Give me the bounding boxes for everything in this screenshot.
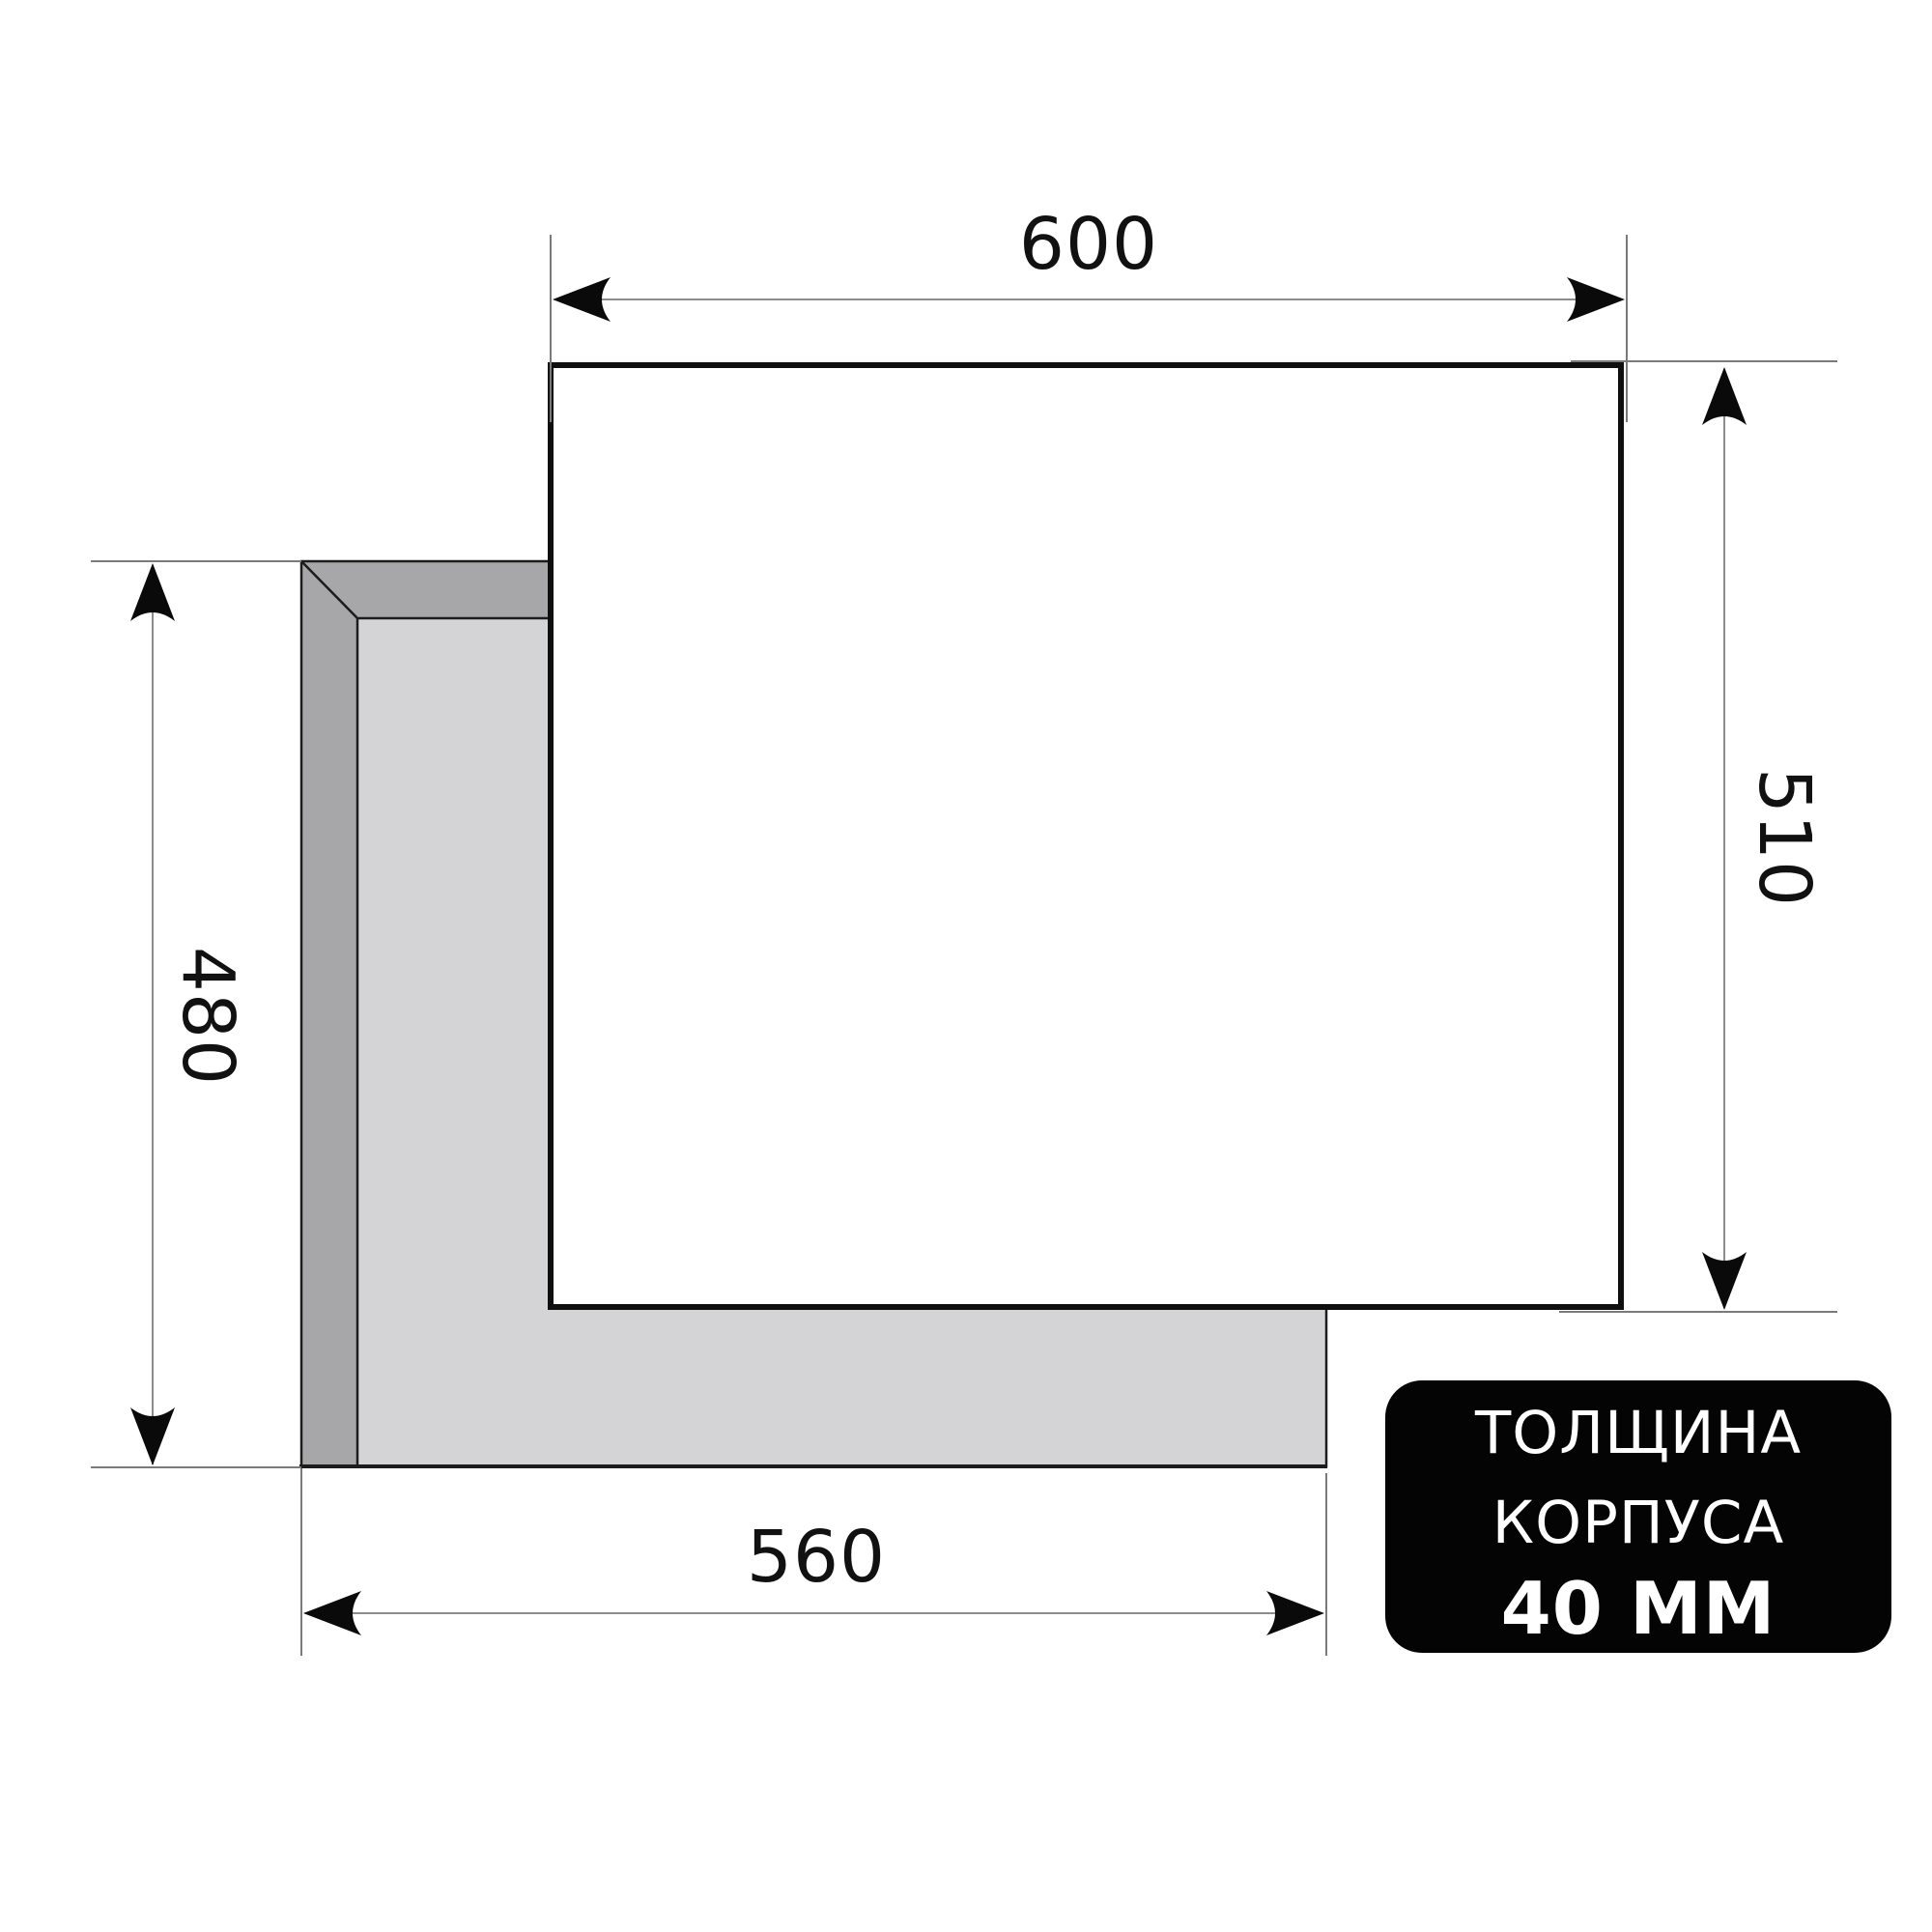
thickness-badge: ТОЛЩИНА КОРПУСА 40 ММ bbox=[1385, 1380, 1891, 1653]
badge-line-3: 40 ММ bbox=[1501, 1566, 1776, 1651]
dimension-label-bottom: 560 bbox=[747, 1516, 886, 1599]
badge-line-1: ТОЛЩИНА bbox=[1474, 1399, 1802, 1467]
badge-line-2: КОРПУСА bbox=[1492, 1489, 1784, 1557]
appliance-panel bbox=[551, 365, 1621, 1307]
dimension-label-right: 510 bbox=[1743, 768, 1826, 907]
diagram-stage: 600 510 480 560 ТОЛЩИНА КОРПУСА 40 ММ bbox=[0, 0, 1932, 1932]
dimension-label-top: 600 bbox=[1019, 203, 1158, 286]
dimension-label-left: 480 bbox=[166, 947, 249, 1086]
cutout-dimension-diagram: 600 510 480 560 ТОЛЩИНА КОРПУСА 40 ММ bbox=[0, 0, 1932, 1932]
